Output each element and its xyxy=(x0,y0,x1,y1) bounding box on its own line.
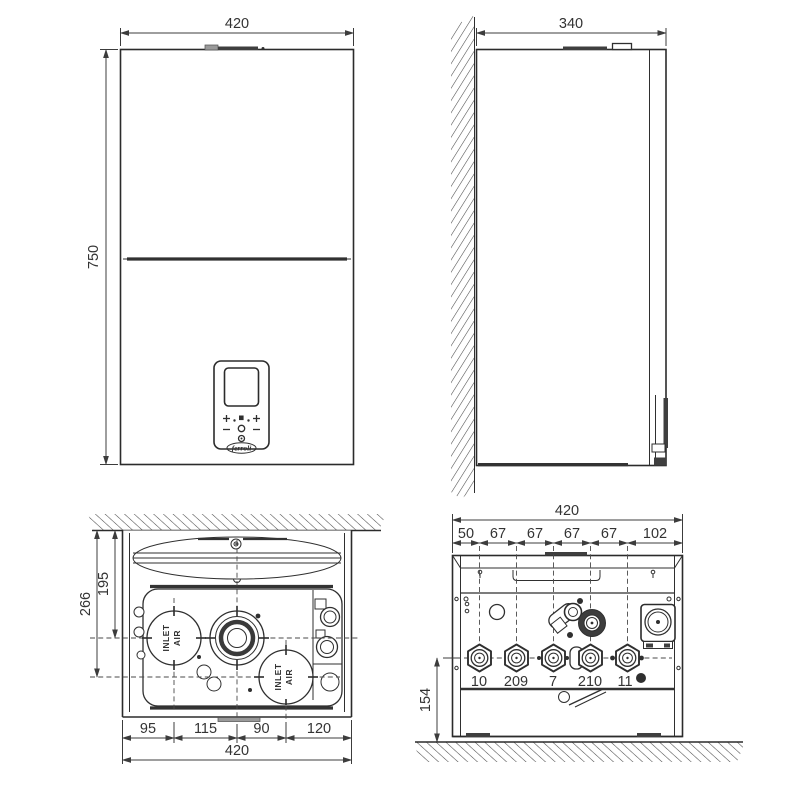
boiler-dimension-drawing: ferroli 420 750 xyxy=(0,0,799,800)
heating-flow-connection xyxy=(468,645,491,672)
inlet-air-label: INLET xyxy=(273,663,283,690)
total-width-label: 420 xyxy=(225,743,249,759)
inlet-air-label: AIR xyxy=(284,669,294,685)
segment-dim-label: 50 xyxy=(458,526,474,542)
cold-water-inlet-connection xyxy=(579,645,602,672)
inlet-air-label: AIR xyxy=(172,630,182,646)
segment-dim-label: 95 xyxy=(140,721,156,737)
top-connector xyxy=(613,44,632,50)
front-height-dimension: 750 xyxy=(86,50,118,465)
side-body xyxy=(477,44,669,466)
panel-hole xyxy=(490,605,505,620)
wall-hatching xyxy=(413,742,745,762)
top-flue-collar xyxy=(218,47,258,51)
segment-dim-label: 115 xyxy=(194,721,217,737)
connection-label: 209 xyxy=(504,674,528,690)
connection-label: 210 xyxy=(578,674,602,690)
gas-cock xyxy=(579,610,606,637)
segment-dim-label: 67 xyxy=(601,526,617,542)
inlet-air-label: INLET xyxy=(161,624,171,651)
wall-to-flue-label: 195 xyxy=(96,572,112,596)
wall-hatching xyxy=(88,514,386,531)
mode-button-icon xyxy=(239,416,244,421)
pump xyxy=(641,605,675,649)
front-control-panel: ferroli xyxy=(214,361,269,453)
heating-return-connection xyxy=(616,645,639,672)
brand-logo-text: ferroli xyxy=(232,444,252,453)
bottom-view: 420 50 67 67 67 67 102 xyxy=(413,503,745,762)
drawing-svg: ferroli 420 750 xyxy=(0,0,799,800)
top-grille xyxy=(545,552,587,556)
side-depth-label: 340 xyxy=(559,16,583,32)
front-height-label: 750 xyxy=(86,245,102,269)
segment-dim-label: 67 xyxy=(527,526,543,542)
top-vent-tab xyxy=(205,45,218,50)
total-width-label: 420 xyxy=(555,503,579,519)
dhw-outlet-connection xyxy=(505,645,528,672)
wall-hatching xyxy=(451,14,474,499)
drain-hole xyxy=(559,692,570,703)
cover-screw-icon xyxy=(231,539,241,549)
segment-dim-label: 67 xyxy=(490,526,506,542)
top-grille xyxy=(563,47,607,51)
wall-to-connections-label: 154 xyxy=(418,688,434,712)
wall-to-front-inlet-label: 266 xyxy=(78,592,94,616)
connection-label: 11 xyxy=(617,674,632,690)
front-view: ferroli 420 750 xyxy=(86,16,354,465)
segment-dim-label: 90 xyxy=(253,721,269,737)
segment-dim-label: 67 xyxy=(564,526,580,542)
connection-label: 7 xyxy=(549,674,557,690)
label-marker-dot xyxy=(636,673,646,683)
top-depth-dimensions: 195 266 xyxy=(78,531,115,678)
side-depth-dimension: 340 xyxy=(477,16,667,46)
segment-dim-label: 120 xyxy=(307,721,331,737)
side-view: 340 xyxy=(451,14,668,499)
display-screen xyxy=(225,368,259,406)
front-width-label: 420 xyxy=(225,16,249,32)
connection-label: 10 xyxy=(471,674,487,690)
front-width-dimension: 420 xyxy=(121,16,354,46)
side-bracket xyxy=(664,398,669,448)
segment-dim-label: 102 xyxy=(643,526,667,542)
top-view: INLET AIR INLET AIR 195 xyxy=(78,514,386,764)
bottom-width-dimensions: 420 50 67 67 67 67 102 xyxy=(453,503,683,553)
gas-inlet-connection xyxy=(542,645,565,672)
top-width-dimensions: 95 115 90 120 420 xyxy=(123,720,352,764)
